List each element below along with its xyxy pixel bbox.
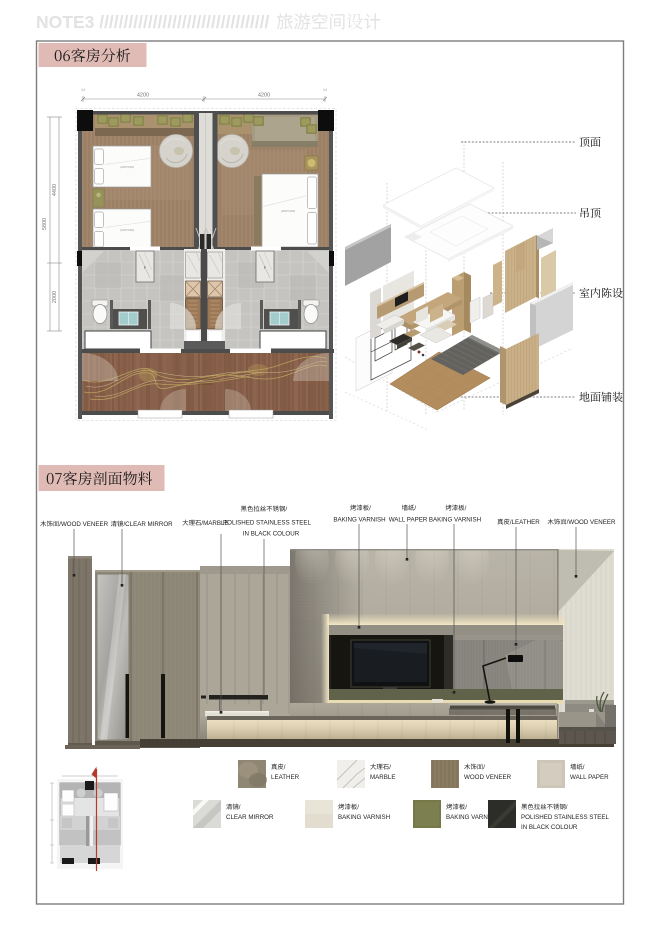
svg-text:BAKING VARNISH: BAKING VARNISH (429, 517, 481, 524)
svg-text:14: 14 (323, 88, 327, 92)
svg-text:/WOOD VENEER: /WOOD VENEER (567, 519, 616, 526)
svg-text:4400: 4400 (52, 184, 58, 196)
svg-text:14: 14 (81, 88, 85, 92)
svg-text:4200: 4200 (258, 93, 270, 99)
svg-text:BAKING VARNISH: BAKING VARNISH (333, 517, 385, 524)
svg-text:2000: 2000 (52, 291, 58, 303)
svg-text:WALL PAPER: WALL PAPER (570, 774, 609, 781)
svg-text:/: / (566, 804, 568, 811)
svg-text:POLISHED STAINLESS STEEL: POLISHED STAINLESS STEEL (223, 520, 311, 527)
svg-text:BAKING VARNISH: BAKING VARNISH (338, 814, 390, 821)
svg-text:5800: 5800 (42, 218, 48, 230)
svg-text:/: / (483, 764, 485, 771)
svg-text:MARBLE: MARBLE (370, 774, 395, 781)
svg-text:(1400*2000): (1400*2000) (120, 228, 134, 232)
svg-text:/: / (369, 505, 371, 512)
svg-text:4200: 4200 (137, 93, 149, 99)
svg-text:/: / (284, 764, 286, 771)
svg-text:/CLEAR MIRROR: /CLEAR MIRROR (123, 521, 173, 528)
svg-text:/: / (389, 764, 391, 771)
svg-text:CORRIDOR: CORRIDOR (197, 382, 214, 386)
svg-text:WALL PAPER: WALL PAPER (389, 517, 428, 524)
svg-text:CLEAR MIRROR: CLEAR MIRROR (226, 814, 274, 821)
svg-text:(1800*2000): (1800*2000) (281, 209, 295, 213)
svg-text:/: / (285, 506, 287, 513)
svg-text:/: / (583, 764, 585, 771)
svg-text:IN BLACK COLOUR: IN BLACK COLOUR (521, 824, 578, 831)
svg-text:LEATHER: LEATHER (271, 774, 300, 781)
svg-text:IN BLACK COLOUR: IN BLACK COLOUR (243, 531, 300, 538)
svg-text:/WOOD VENEER: /WOOD VENEER (59, 521, 108, 528)
svg-text:/: / (414, 505, 416, 512)
svg-text:/LEATHER: /LEATHER (510, 519, 540, 526)
svg-text:POLISHED STAINLESS STEEL: POLISHED STAINLESS STEEL (521, 814, 609, 821)
svg-text:NOTE3 ////////////////////////: NOTE3 //////////////////////////////////… (36, 12, 270, 32)
svg-text:(1400*2000): (1400*2000) (120, 165, 134, 169)
svg-text:GUESTROOM LEVEL: GUESTROOM LEVEL (190, 377, 220, 381)
svg-text:WOOD VENEER: WOOD VENEER (464, 774, 512, 781)
svg-text:/: / (357, 804, 359, 811)
svg-text:/: / (465, 505, 467, 512)
svg-text:/: / (465, 804, 467, 811)
svg-text:/: / (239, 804, 241, 811)
